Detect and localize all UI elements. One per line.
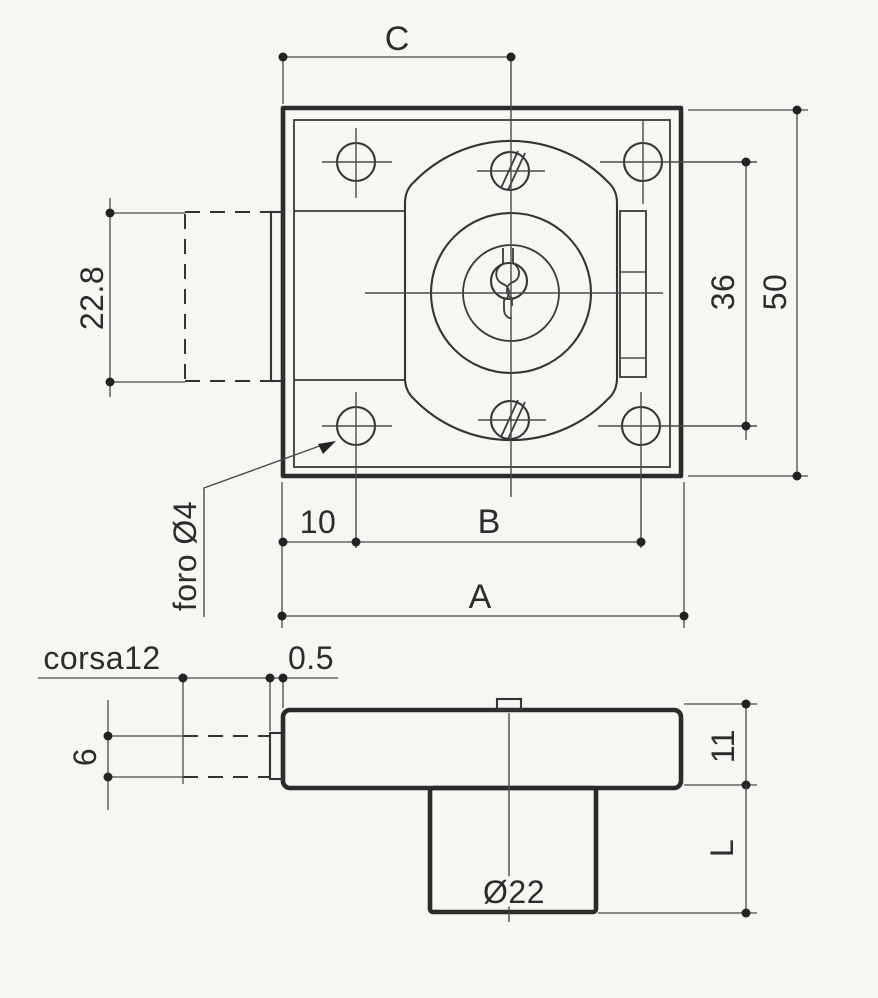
body-outline — [283, 710, 681, 788]
dim-latch-thickness-label: 6 — [67, 748, 103, 766]
dim-offset-and-b: 10 B — [279, 482, 646, 628]
dim-protrusion-label: 0.5 — [288, 640, 334, 676]
dim-10-dot-right — [352, 538, 361, 547]
latch-front — [185, 212, 283, 381]
dim-latch-thickness: 6 — [67, 700, 183, 810]
dim-a-dot-left — [278, 612, 287, 621]
dim-50-dot-top — [793, 106, 802, 115]
hole-callout-label: foro Ø4 — [167, 501, 203, 611]
dim-6-dot-bottom — [104, 773, 113, 782]
dim-corsa-dot-mid — [266, 674, 275, 683]
dim-corsa-dot-left — [179, 674, 188, 683]
dim-228-dot-bottom — [106, 378, 115, 387]
dim-latch-height: 22.8 — [74, 198, 185, 397]
dim-cylinder-length-label: L — [704, 839, 740, 857]
dim-6-dot-top — [104, 732, 113, 741]
dim-cylinder-diameter-label: Ø22 — [483, 874, 545, 910]
front-view: C 22.8 36 50 — [74, 20, 808, 628]
side-bracket — [620, 211, 646, 377]
dim-c-dot-left — [279, 53, 288, 62]
dim-hole-span: 36 — [705, 158, 751, 441]
dim-l-dot-bottom — [742, 909, 751, 918]
dim-36-dot-top — [742, 158, 751, 167]
dim-a-label: A — [469, 578, 492, 616]
dim-offset-label: 10 — [300, 504, 337, 540]
dim-body-depth: 11 — [684, 700, 757, 790]
dim-b-label: B — [478, 503, 501, 541]
dim-c-dot-right — [507, 53, 516, 62]
side-view: corsa12 0.5 6 11 L Ø22 — [38, 640, 757, 922]
dim-a-dot-right — [680, 612, 689, 621]
dim-50-dot-bottom — [793, 472, 802, 481]
technical-drawing-canvas: C 22.8 36 50 — [0, 0, 878, 998]
dim-11-dot-top — [742, 700, 751, 709]
dim-c: C — [279, 20, 516, 104]
plate-outer-edge — [283, 108, 681, 476]
dim-corsa-dot-right — [279, 674, 288, 683]
dim-body-depth-label: 11 — [705, 729, 741, 763]
bottom-screw-slot-a — [501, 400, 518, 437]
keyhole — [491, 248, 527, 318]
bottom-screw — [478, 400, 546, 439]
dim-c-label: C — [385, 20, 410, 58]
lock-plate — [283, 108, 681, 476]
dim-b-dot-right — [637, 538, 646, 547]
dim-228-dot-top — [106, 209, 115, 218]
fixing-holes — [322, 120, 757, 548]
dim-hole-span-label: 36 — [705, 274, 741, 311]
dim-plate-size-label: 50 — [757, 274, 793, 311]
stroke-label: corsa12 — [43, 640, 160, 676]
lock-body-side — [183, 699, 681, 922]
dim-latch-height-label: 22.8 — [74, 266, 110, 330]
dim-10-dot-left — [279, 538, 288, 547]
dim-36-dot-bottom — [742, 422, 751, 431]
drawing-sheet: C 22.8 36 50 — [0, 0, 878, 998]
top-screw-slot-a — [501, 151, 518, 188]
dim-cylinder-length: L — [598, 785, 757, 918]
hole-callout-arrowhead — [318, 441, 336, 454]
